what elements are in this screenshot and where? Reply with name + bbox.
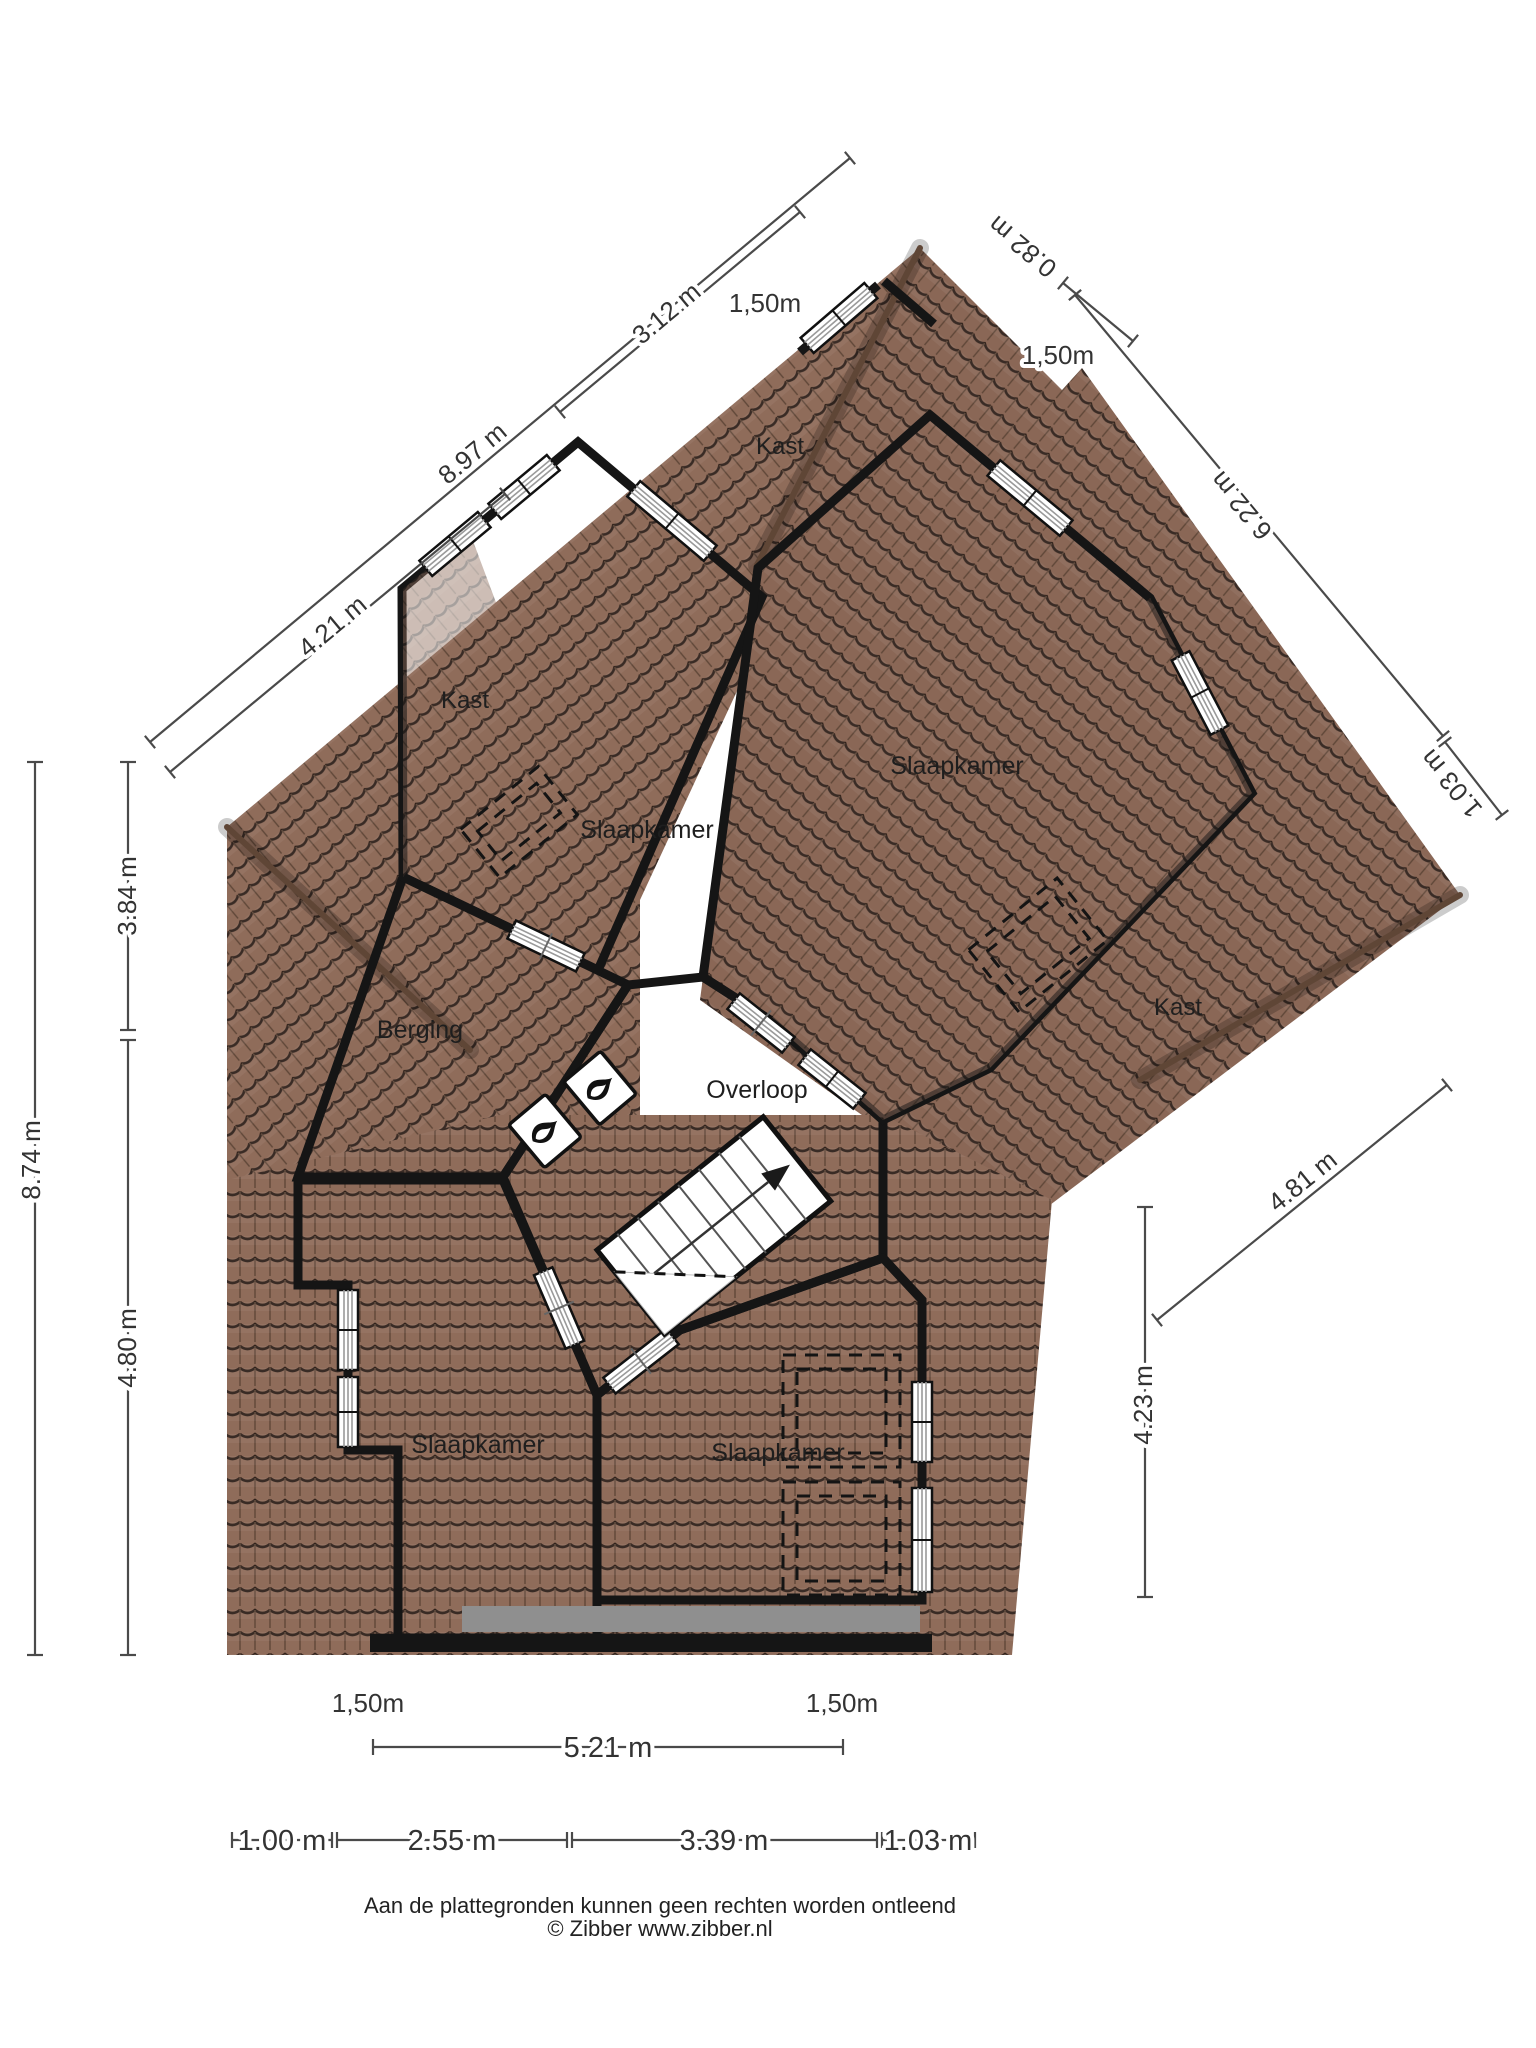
footer-credit: © Zibber www.zibber.nl [547,1916,772,1941]
label-berging: Berging [377,1016,463,1044]
dim-left-lower: 4.80 m [112,1308,142,1388]
label-slaapkamer-bottom-center: Slaapkamer [711,1439,844,1467]
dim-bottom-1: 1.00 m [238,1825,327,1857]
dim-height-top-left: 1,50m [729,288,801,318]
floorplan-drawing: 8.97 m 3.12 m 4.21 m 1,50m 0.82 m 1,50m … [0,0,1536,2048]
dim-height-bottom-left: 1,50m [332,1688,404,1718]
window [912,1488,932,1592]
dim-bottom-3: 3.39 m [680,1825,769,1857]
window [338,1377,358,1447]
label-kast-top: Kast [756,433,804,460]
dim-bottom-span: 5.21 m [564,1732,653,1764]
label-slaapkamer-top-left: Slaapkamer [580,816,713,844]
dim-height-bottom-right: 1,50m [806,1688,878,1718]
dim-left-outer: 8.74 m [16,1120,46,1200]
dim-left-upper: 3.84 m [112,856,142,936]
dim-right-lower: 4.23 m [1128,1365,1158,1445]
dim-bottom-4: 1.03 m [884,1825,973,1857]
label-kast-right: Kast [1154,994,1202,1021]
label-slaapkamer-bottom-left: Slaapkamer [411,1431,544,1459]
window [338,1290,358,1370]
bottom-wall-band [370,1634,932,1652]
ledge [462,1606,920,1632]
footer-disclaimer: Aan de plattegronden kunnen geen rechten… [364,1893,956,1918]
window [912,1382,932,1462]
label-slaapkamer-top-right: Slaapkamer [890,752,1023,780]
label-overloop: Overloop [706,1076,807,1104]
label-kast-left: Kast [441,687,489,714]
dim-bottom-2: 2.55 m [408,1825,497,1857]
floorplan-page: 8.97 m 3.12 m 4.21 m 1,50m 0.82 m 1,50m … [0,0,1536,2048]
dim-height-top-right: 1,50m [1022,340,1094,370]
